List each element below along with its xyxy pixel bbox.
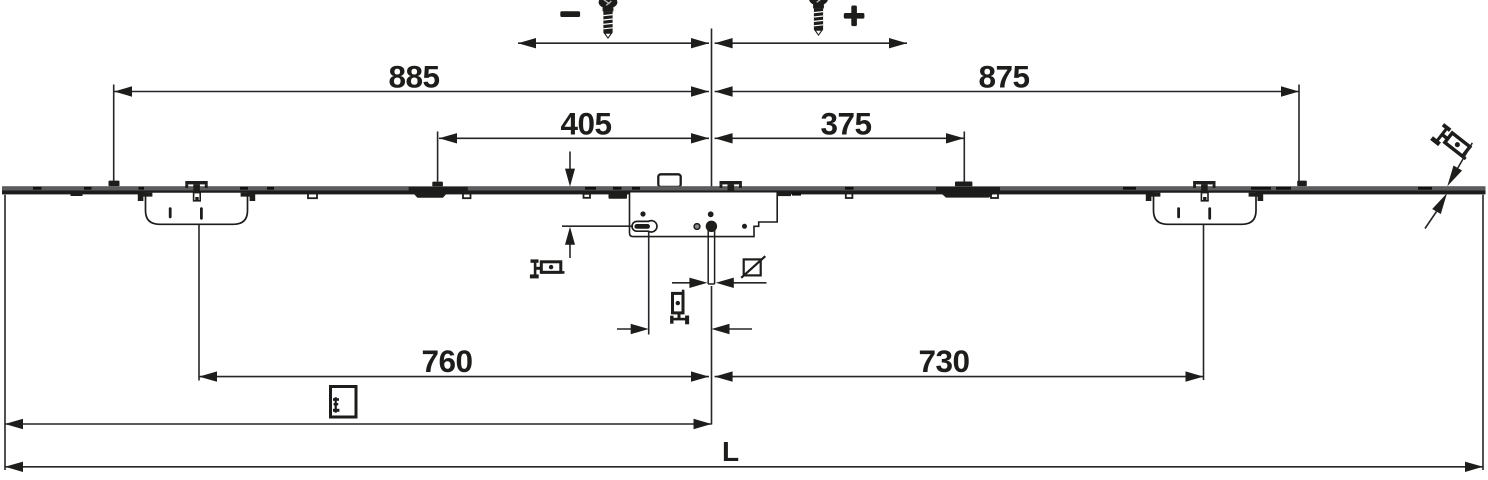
svg-text:875: 875 [978,59,1029,95]
svg-text:375: 375 [820,106,871,142]
svg-text:885: 885 [388,59,439,95]
svg-text:760: 760 [421,343,472,379]
svg-text:730: 730 [918,343,969,379]
svg-text:405: 405 [560,106,611,142]
svg-text:L: L [722,436,739,467]
